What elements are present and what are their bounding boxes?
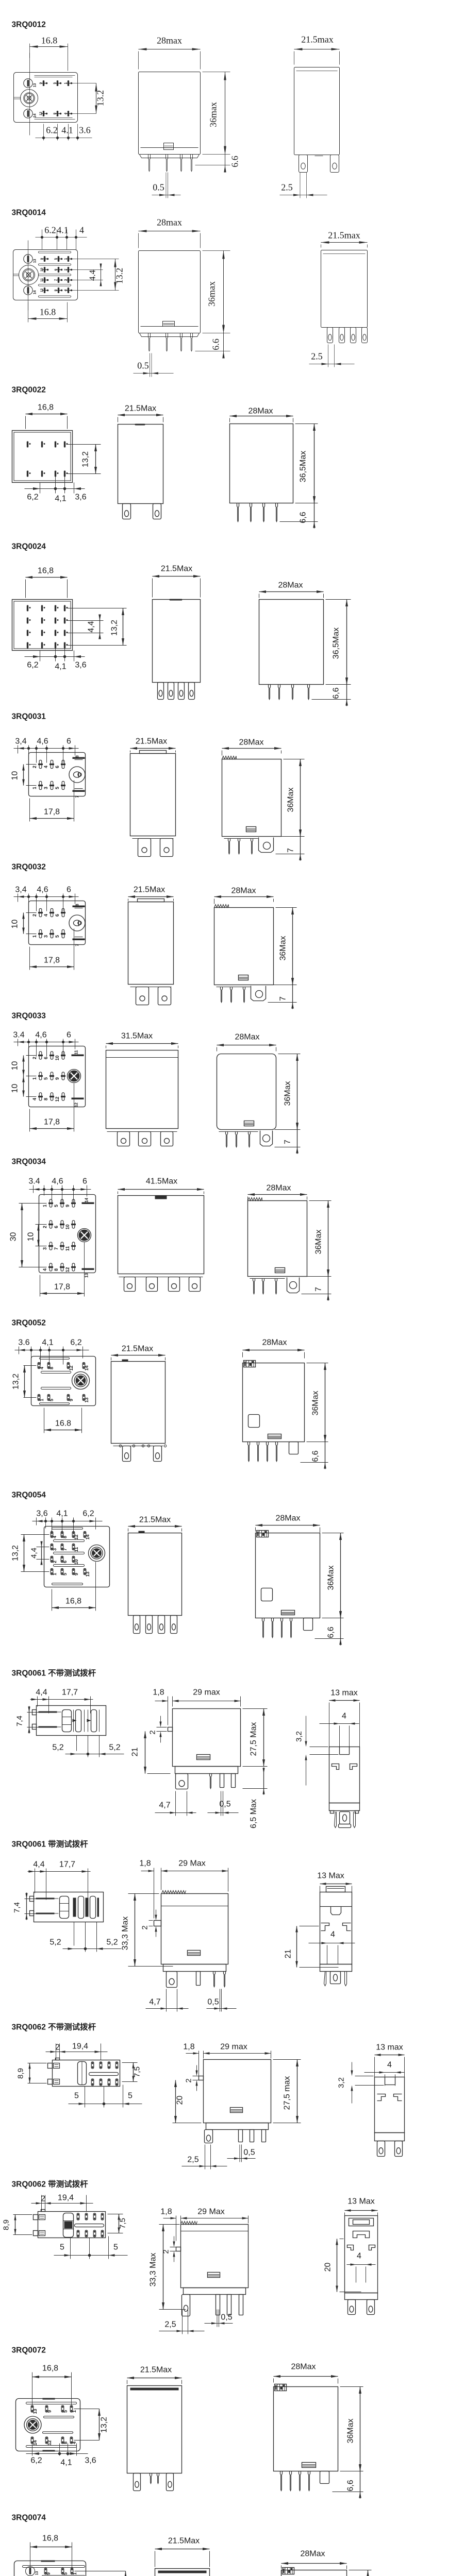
svg-text:11: 11 [74,1547,79,1552]
svg-text:6,5 Max: 6,5 Max [250,1799,258,1828]
svg-text:13: 13 [85,1273,89,1278]
svg-text:1: 1 [64,82,68,84]
svg-text:13.2: 13.2 [95,90,106,107]
svg-text:5,2: 5,2 [109,1743,120,1752]
svg-text:17,8: 17,8 [54,1283,70,1292]
svg-text:36Max: 36Max [314,1229,323,1254]
svg-text:21.5Max: 21.5Max [161,565,192,573]
svg-text:19,4: 19,4 [58,2194,74,2202]
svg-text:9: 9 [69,1399,74,1401]
svg-text:36Max: 36Max [311,1391,320,1415]
svg-text:29 Max: 29 Max [197,2208,224,2216]
svg-text:3.4: 3.4 [13,1031,24,1040]
svg-text:6: 6 [54,1226,59,1228]
svg-text:4.1: 4.1 [57,225,69,235]
svg-text:2: 2 [185,2078,193,2082]
svg-text:1,8: 1,8 [160,2208,172,2216]
svg-text:4: 4 [357,2252,361,2261]
svg-text:4: 4 [43,914,48,917]
svg-text:13,2: 13,2 [100,2417,109,2433]
svg-text:2: 2 [32,914,37,917]
svg-text:29 max: 29 max [193,1688,220,1697]
svg-text:6: 6 [43,1057,48,1059]
svg-text:8,9: 8,9 [16,2068,25,2079]
svg-text:5: 5 [53,82,57,84]
svg-text:7: 7 [75,944,80,946]
svg-text:4.4: 4.4 [88,269,97,281]
svg-text:3RQ0061 不带测试拨杆: 3RQ0061 不带测试拨杆 [12,1668,96,1678]
svg-text:28Max: 28Max [239,738,263,747]
svg-text:28Max: 28Max [275,1514,300,1523]
svg-text:8: 8 [54,1268,59,1271]
svg-text:14: 14 [84,1365,89,1370]
svg-text:9: 9 [65,1205,70,1207]
svg-text:33,3 Max: 33,3 Max [121,1917,130,1951]
svg-text:2,5: 2,5 [187,2156,198,2164]
svg-text:9: 9 [40,258,44,260]
svg-text:31.5Max: 31.5Max [121,1032,153,1041]
svg-text:36Max: 36Max [346,2418,355,2443]
svg-text:6,6: 6,6 [327,1626,336,1638]
svg-text:4,6: 4,6 [37,737,48,746]
svg-text:36max: 36max [207,281,217,307]
svg-text:4: 4 [330,1930,335,1939]
svg-text:28Max: 28Max [291,2363,316,2371]
svg-text:13.2: 13.2 [114,268,125,284]
svg-text:16.8: 16.8 [41,36,58,46]
svg-text:3: 3 [42,1247,47,1250]
svg-text:6: 6 [54,268,58,270]
svg-text:17,7: 17,7 [62,1688,78,1697]
svg-text:8: 8 [63,2442,68,2444]
svg-text:7: 7 [314,1287,323,1292]
svg-text:6,6: 6,6 [332,687,341,699]
svg-text:3.4: 3.4 [28,1177,40,1186]
svg-text:12: 12 [65,1267,70,1272]
svg-text:3RQ0031: 3RQ0031 [12,713,46,721]
svg-text:3RQ0024: 3RQ0024 [12,543,46,551]
svg-text:10: 10 [40,268,44,272]
svg-text:8: 8 [43,1098,48,1100]
svg-text:5: 5 [62,1573,68,1575]
svg-text:8: 8 [75,904,80,906]
svg-text:7: 7 [279,996,288,1001]
svg-text:13,2: 13,2 [110,620,119,636]
svg-text:9: 9 [39,82,43,84]
svg-text:6: 6 [62,1561,68,1563]
svg-text:13 Max: 13 Max [317,1872,344,1880]
svg-text:36Max: 36Max [279,936,288,960]
svg-text:4,1: 4,1 [55,495,66,503]
svg-text:12: 12 [74,1103,79,1107]
svg-text:3RQ0034: 3RQ0034 [12,1158,46,1166]
svg-text:5: 5 [63,2572,68,2575]
svg-text:1: 1 [32,787,37,789]
svg-text:2: 2 [32,766,37,768]
svg-text:5: 5 [60,2243,64,2252]
svg-text:21: 21 [284,1950,293,1959]
svg-text:21: 21 [131,1748,140,1757]
svg-text:7,5: 7,5 [119,2218,127,2229]
svg-text:3RQ0054: 3RQ0054 [12,1491,46,1500]
svg-text:4,4: 4,4 [30,1548,39,1558]
svg-text:4,1: 4,1 [55,663,66,671]
svg-text:2: 2 [52,1561,57,1563]
svg-text:8: 8 [49,1367,54,1369]
svg-text:28max: 28max [157,217,182,228]
svg-text:4,1: 4,1 [60,2459,72,2467]
svg-text:13: 13 [32,2409,38,2414]
svg-text:6: 6 [55,766,60,768]
svg-text:16,8: 16,8 [38,567,54,575]
svg-text:0,5: 0,5 [207,1998,219,2007]
svg-text:3,6: 3,6 [85,2456,96,2465]
svg-text:3RQ0062 带测试拨杆: 3RQ0062 带测试拨杆 [12,2179,89,2189]
svg-text:1,8: 1,8 [183,2043,194,2052]
svg-text:17,7: 17,7 [59,1860,75,1869]
svg-text:17,8: 17,8 [44,1118,60,1127]
svg-text:21.5Max: 21.5Max [134,886,165,894]
svg-text:14: 14 [34,114,37,118]
svg-text:28Max: 28Max [278,581,303,590]
svg-text:3: 3 [43,787,48,789]
svg-text:5: 5 [55,787,60,789]
svg-text:2: 2 [42,1226,47,1228]
svg-text:4,1: 4,1 [42,1338,53,1347]
svg-text:29 Max: 29 Max [178,1859,205,1868]
svg-text:8: 8 [62,1536,68,1538]
svg-text:4: 4 [342,1712,346,1721]
svg-text:6: 6 [82,1177,87,1186]
svg-text:13,2: 13,2 [12,1374,21,1389]
svg-text:8: 8 [75,755,80,758]
svg-text:7: 7 [75,795,80,798]
svg-text:2.5: 2.5 [281,182,293,193]
svg-text:11: 11 [40,278,44,282]
svg-text:5: 5 [43,1077,48,1080]
svg-text:19,4: 19,4 [72,2042,88,2051]
svg-text:11: 11 [65,1246,70,1251]
svg-text:5: 5 [49,1399,54,1401]
svg-text:0.5: 0.5 [153,182,164,193]
svg-text:6,2: 6,2 [82,1510,94,1518]
svg-text:30: 30 [9,1232,18,1242]
svg-text:5: 5 [74,2092,79,2100]
svg-text:9: 9 [47,2410,52,2413]
svg-text:5,2: 5,2 [106,1938,118,1947]
svg-text:2,5: 2,5 [164,2320,176,2329]
svg-text:36,5Max: 36,5Max [332,628,341,659]
svg-text:2.5: 2.5 [311,351,323,362]
svg-text:3: 3 [43,935,48,938]
svg-text:4,7: 4,7 [149,1998,160,2007]
svg-text:3.6: 3.6 [79,125,91,135]
svg-text:3RQ0033: 3RQ0033 [12,1012,46,1021]
svg-text:9: 9 [74,1573,79,1575]
svg-text:3,2: 3,2 [337,2077,346,2088]
svg-text:1: 1 [32,935,37,938]
svg-text:0,5: 0,5 [219,1800,230,1809]
svg-text:6,2: 6,2 [70,1338,81,1347]
svg-text:12: 12 [47,2440,52,2445]
svg-text:16,8: 16,8 [38,403,54,412]
svg-text:6: 6 [67,1031,71,1040]
svg-text:21.5Max: 21.5Max [122,1345,153,1353]
svg-text:3RQ0062 不带测试拨杆: 3RQ0062 不带测试拨杆 [12,2022,96,2032]
svg-text:2: 2 [64,268,68,270]
svg-text:6: 6 [67,886,71,894]
svg-text:10: 10 [27,1232,36,1242]
svg-text:13: 13 [84,1397,89,1402]
svg-text:14: 14 [34,291,37,295]
svg-text:8: 8 [53,112,57,114]
svg-text:7: 7 [287,848,295,853]
svg-text:5: 5 [113,2243,118,2252]
svg-text:20: 20 [176,2096,185,2105]
svg-text:1,8: 1,8 [139,1859,151,1868]
svg-text:1: 1 [72,2410,77,2413]
svg-text:6.6: 6.6 [211,338,221,350]
svg-text:5: 5 [63,2410,68,2413]
svg-text:6,2: 6,2 [30,2456,42,2465]
svg-text:6.6: 6.6 [230,156,240,167]
svg-text:3,2: 3,2 [295,1731,304,1742]
svg-text:13: 13 [36,2571,39,2575]
svg-text:20: 20 [324,2263,333,2272]
svg-text:4: 4 [72,2442,77,2444]
svg-text:2: 2 [148,1730,157,1734]
svg-text:6: 6 [67,737,71,746]
svg-text:3,6: 3,6 [75,661,86,670]
svg-text:6.2: 6.2 [44,225,56,235]
svg-text:36Max: 36Max [327,1565,336,1590]
svg-text:8,9: 8,9 [2,2219,11,2230]
svg-text:3: 3 [52,1548,57,1551]
svg-text:21.5Max: 21.5Max [136,737,167,746]
svg-text:6: 6 [55,914,60,917]
svg-text:28Max: 28Max [235,1033,259,1042]
svg-text:1: 1 [32,1077,37,1080]
svg-text:4,7: 4,7 [159,1801,170,1810]
svg-text:21.5max: 21.5max [301,35,334,45]
svg-text:13,2: 13,2 [81,451,90,467]
svg-text:28Max: 28Max [231,887,256,895]
svg-text:10: 10 [65,1224,70,1229]
svg-text:3RQ0052: 3RQ0052 [12,1319,46,1328]
svg-text:13: 13 [85,1571,90,1577]
svg-text:16,8: 16,8 [42,2364,58,2373]
svg-text:4,6: 4,6 [35,1031,46,1040]
svg-text:11: 11 [74,1050,79,1055]
svg-text:13: 13 [34,83,37,88]
svg-text:2: 2 [32,1057,37,1059]
svg-text:8: 8 [54,289,58,291]
svg-text:13: 13 [34,259,37,263]
svg-text:1: 1 [39,1399,44,1401]
svg-text:4,6: 4,6 [52,1177,63,1186]
svg-text:7: 7 [284,1140,292,1144]
svg-text:6,2: 6,2 [27,661,38,670]
svg-text:13 Max: 13 Max [347,2197,374,2206]
svg-text:1: 1 [52,1573,57,1575]
svg-text:21.5Max: 21.5Max [139,1516,171,1524]
svg-text:5: 5 [54,1205,59,1207]
svg-text:7,5: 7,5 [133,2066,142,2077]
svg-text:14: 14 [85,1534,90,1539]
svg-text:36Max: 36Max [287,787,295,812]
svg-text:9: 9 [55,1077,60,1080]
svg-text:12: 12 [74,1534,79,1539]
svg-text:3RQ0022: 3RQ0022 [12,386,46,395]
svg-text:4,4: 4,4 [33,1860,44,1869]
svg-text:12: 12 [69,1365,74,1370]
svg-text:4: 4 [64,112,68,114]
svg-text:0,5: 0,5 [243,2148,255,2157]
svg-text:12: 12 [40,289,44,293]
svg-text:28Max: 28Max [300,2550,325,2558]
svg-text:21.5Max: 21.5Max [168,2537,200,2546]
svg-text:17,8: 17,8 [44,956,60,965]
svg-text:29 max: 29 max [220,2043,247,2052]
svg-text:21.5max: 21.5max [328,230,360,241]
svg-text:10: 10 [74,1559,79,1564]
svg-text:12: 12 [55,1096,60,1101]
svg-text:27,5 Max: 27,5 Max [250,1722,258,1756]
svg-text:4: 4 [42,1268,47,1271]
svg-text:6,6: 6,6 [299,512,308,523]
svg-text:2: 2 [141,1925,150,1929]
svg-text:3,4: 3,4 [15,886,26,894]
svg-text:0,5: 0,5 [221,2313,232,2322]
svg-text:12: 12 [39,112,43,116]
svg-text:9: 9 [46,2572,51,2575]
svg-text:0.5: 0.5 [137,361,149,371]
svg-text:5,2: 5,2 [52,1743,63,1752]
svg-text:3RQ0072: 3RQ0072 [12,2346,46,2355]
svg-text:28Max: 28Max [266,1184,291,1193]
svg-text:1,8: 1,8 [153,1688,164,1697]
svg-text:7: 7 [54,279,58,281]
svg-text:1: 1 [64,258,68,260]
svg-text:10: 10 [11,920,20,929]
svg-text:4: 4 [43,766,48,768]
svg-text:10: 10 [11,771,20,781]
svg-text:33,3 Max: 33,3 Max [149,2253,158,2287]
svg-text:10: 10 [11,1084,20,1093]
svg-text:28Max: 28Max [248,407,273,416]
svg-text:7: 7 [54,1247,59,1250]
svg-text:3,6: 3,6 [75,493,86,502]
svg-text:36,5Max: 36,5Max [299,451,308,482]
svg-text:28max: 28max [157,36,182,46]
svg-text:28Max: 28Max [262,1338,287,1347]
svg-text:16,8: 16,8 [42,2534,58,2543]
svg-text:10: 10 [55,1055,60,1060]
svg-text:4: 4 [39,1367,44,1369]
svg-text:3RQ0012: 3RQ0012 [12,21,46,29]
svg-text:27,5 max: 27,5 max [283,2076,292,2110]
svg-text:1: 1 [42,1205,47,1207]
svg-text:3,4: 3,4 [15,737,26,746]
svg-text:36Max: 36Max [284,1081,292,1106]
svg-text:3RQ0032: 3RQ0032 [12,863,46,872]
svg-text:21.5Max: 21.5Max [140,2366,172,2375]
svg-text:41.5Max: 41.5Max [146,1177,177,1186]
svg-text:10: 10 [11,1061,20,1071]
svg-text:13,2: 13,2 [11,1545,20,1561]
svg-text:13 max: 13 max [376,2043,403,2052]
svg-text:6,2: 6,2 [27,493,38,502]
svg-text:4,4: 4,4 [36,1688,47,1697]
svg-text:21.5Max: 21.5Max [125,404,156,413]
svg-text:3RQ0074: 3RQ0074 [12,2514,46,2522]
svg-text:16,8: 16,8 [65,1597,81,1606]
svg-text:4.1: 4.1 [61,125,73,135]
svg-text:14: 14 [32,2440,38,2445]
svg-text:4: 4 [64,289,68,291]
svg-text:3RQ0061 带测试拨杆: 3RQ0061 带测试拨杆 [12,1839,89,1849]
svg-text:5: 5 [54,258,58,260]
svg-text:7: 7 [62,1548,68,1551]
svg-text:6,6: 6,6 [311,1450,320,1462]
svg-text:16.8: 16.8 [40,307,56,317]
svg-text:16.8: 16.8 [55,1419,71,1428]
svg-text:3.6: 3.6 [18,1338,29,1347]
svg-text:5,2: 5,2 [49,1938,61,1947]
svg-text:36max: 36max [208,102,219,127]
svg-text:4: 4 [52,1536,57,1538]
svg-text:4,4: 4,4 [87,621,96,632]
svg-text:5: 5 [55,935,60,938]
svg-text:3: 3 [64,279,68,281]
svg-text:6.2: 6.2 [46,125,58,135]
svg-text:4: 4 [79,225,84,235]
svg-text:5: 5 [128,2092,132,2100]
svg-text:13 max: 13 max [330,1689,357,1698]
svg-text:7,4: 7,4 [15,1716,24,1726]
svg-text:3,6: 3,6 [36,1510,47,1518]
svg-text:4: 4 [387,2061,392,2070]
svg-text:6,6: 6,6 [346,2480,355,2491]
svg-text:7,4: 7,4 [13,1902,22,1913]
svg-text:4,1: 4,1 [56,1510,68,1518]
svg-text:14: 14 [85,1198,89,1202]
svg-text:4: 4 [32,1098,37,1100]
svg-text:17,8: 17,8 [44,808,60,817]
svg-text:3RQ0014: 3RQ0014 [12,209,46,217]
svg-text:4,6: 4,6 [37,886,48,894]
svg-text:1: 1 [72,2572,77,2575]
